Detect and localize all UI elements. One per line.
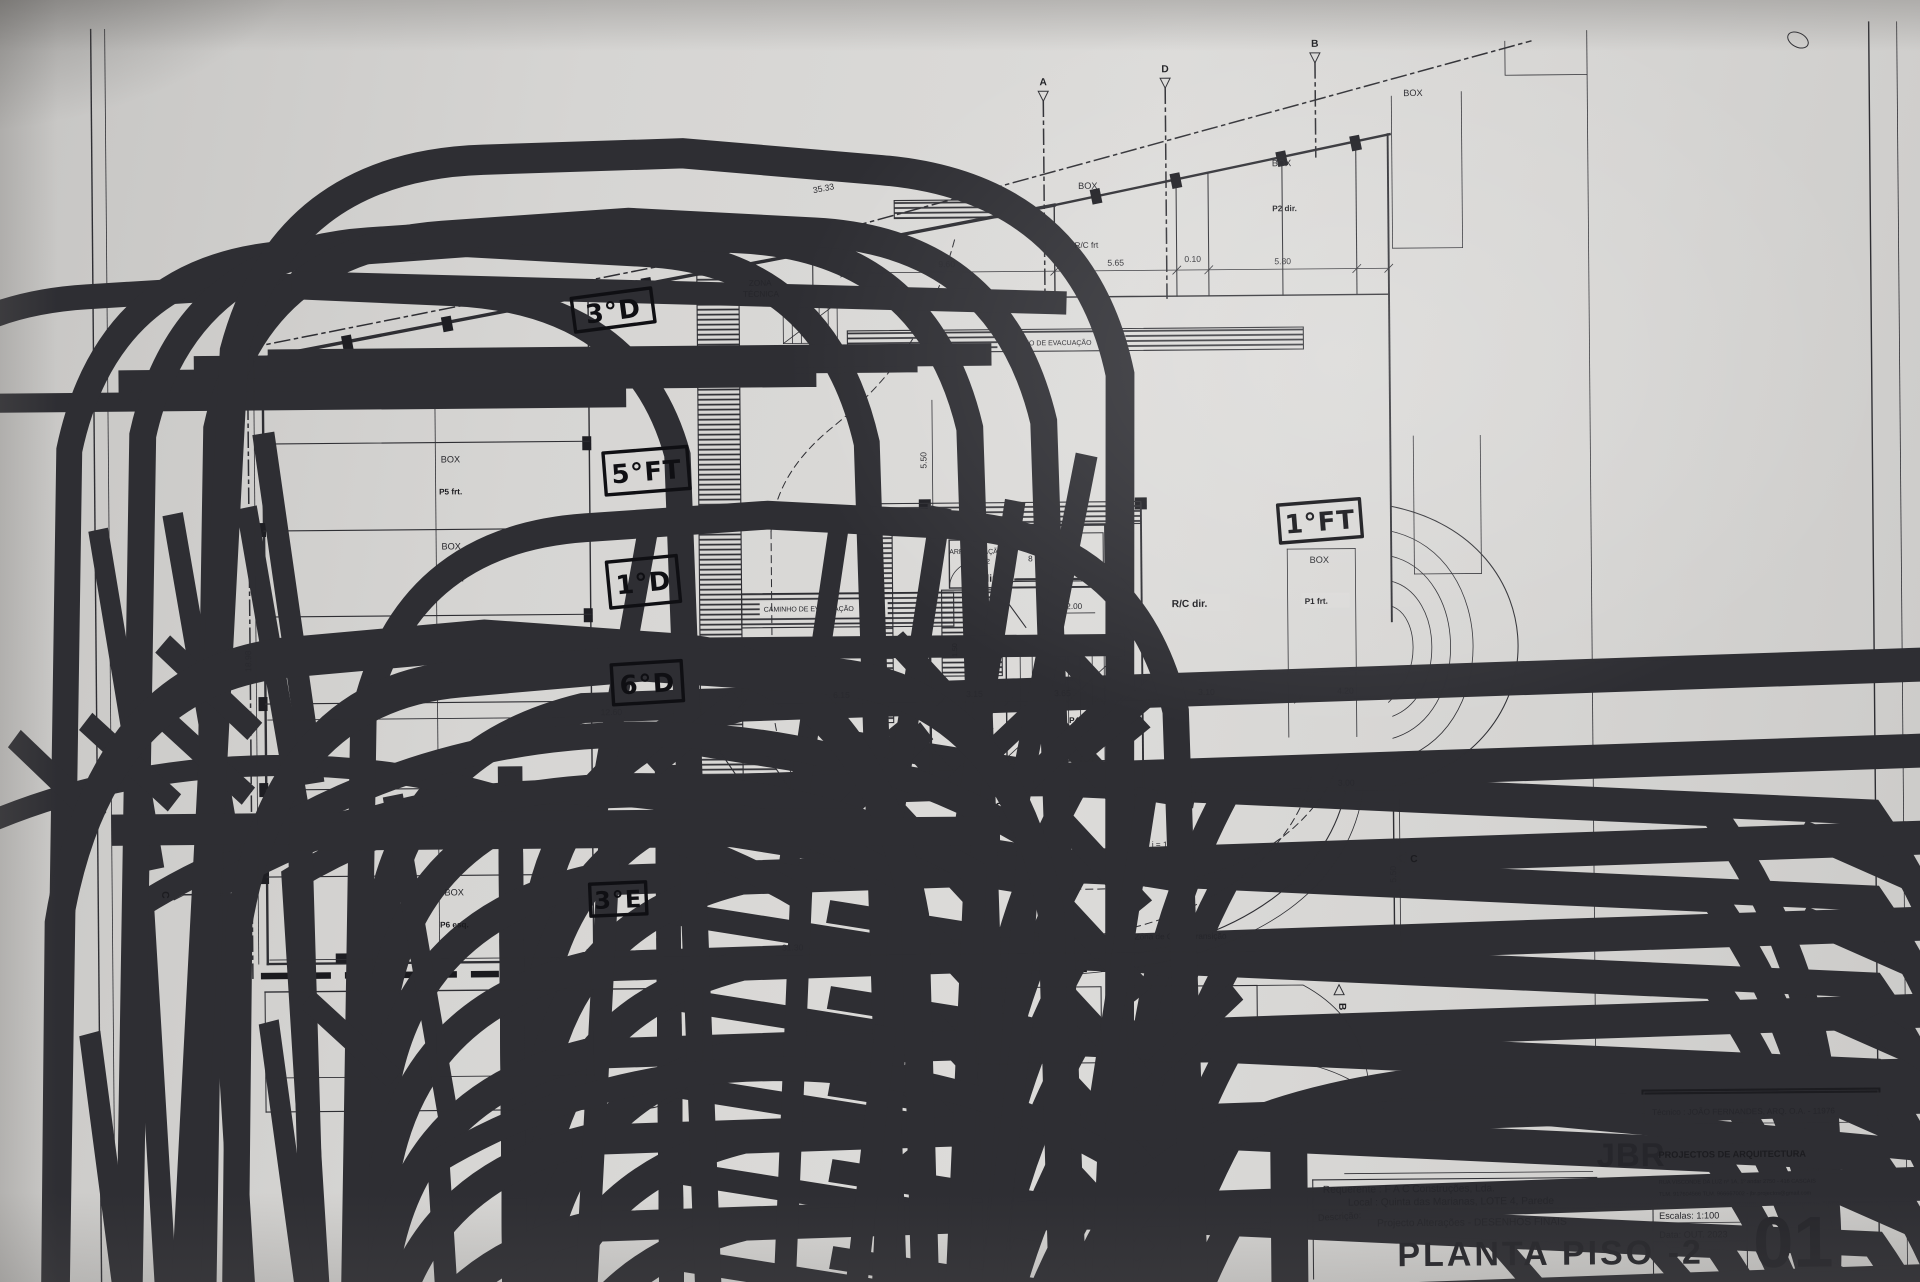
dim: 3.00 bbox=[1338, 778, 1355, 788]
dim: 3.65 bbox=[1054, 688, 1071, 698]
dim: 18.98 bbox=[243, 650, 253, 672]
dim: 6.15 bbox=[833, 690, 850, 700]
dim: 5.65 bbox=[1107, 258, 1124, 268]
photographed-drawing: BOX P3 dir. BOX P5 frt. BOX P1 dir. BOX … bbox=[0, 0, 1920, 1282]
stall-box-label: BOX bbox=[444, 887, 463, 897]
floor-plan: BOX P3 dir. BOX P5 frt. BOX P1 dir. BOX … bbox=[0, 0, 1920, 1282]
box-label: BOX bbox=[1272, 158, 1291, 168]
sheet-title: PLANTA PISO -2 bbox=[1397, 1234, 1704, 1275]
svg-text:5°FT: 5°FT bbox=[610, 455, 683, 490]
requerente-line: Requerente : F A C Construções, Lda. bbox=[1323, 1183, 1495, 1196]
dim: 4.20 bbox=[1337, 686, 1354, 696]
box-label: BOX bbox=[1310, 555, 1329, 565]
section-marker-b: B bbox=[1336, 1003, 1347, 1010]
stall-box-label: BOX bbox=[441, 454, 460, 464]
section-marker-c: C bbox=[159, 891, 170, 899]
svg-text:6°D: 6°D bbox=[619, 668, 676, 701]
unit-label-rc-frt: R/C frt bbox=[1075, 241, 1099, 250]
stall-id-label: P5 frt. bbox=[439, 487, 462, 496]
stall-p1-frt: P1 frt. bbox=[1305, 597, 1328, 606]
firm-logo: JBR bbox=[1596, 1136, 1665, 1174]
tecnico-line: Técnico : JOÃO FERNANDES, ARQ. O.A. - 11… bbox=[1652, 1105, 1835, 1117]
dim: 1.50 bbox=[952, 643, 959, 657]
svg-text:1°D: 1°D bbox=[615, 566, 673, 601]
box-label: BOX bbox=[1078, 181, 1097, 191]
stall-box-label: BOX bbox=[441, 541, 460, 551]
dim: 12.60 bbox=[601, 707, 623, 717]
dim: 5.80 bbox=[1274, 256, 1291, 266]
stall-id-label: P6 esq. bbox=[440, 920, 469, 929]
section-marker-c: C bbox=[1410, 854, 1418, 865]
handwritten-note-3e: 3°E bbox=[590, 882, 647, 916]
unit-label-rc-dir-car: R/C dir. bbox=[1172, 599, 1208, 610]
dim: 3.10 bbox=[1198, 687, 1215, 697]
local-line: Local : Quinta das Marianas, LOTE 4, Par… bbox=[1348, 1196, 1555, 1209]
data-line: Data: OUT. 2023 bbox=[1659, 1229, 1728, 1240]
section-marker-a: A bbox=[1039, 77, 1047, 88]
escalas-line: Escalas: 1:100 bbox=[1659, 1210, 1719, 1221]
descricao-line: Projecto Alterações - DESENHOS FINAIS bbox=[1377, 1217, 1567, 1230]
dim: 0.10 bbox=[1184, 254, 1201, 264]
dim: 5.50 bbox=[918, 452, 928, 469]
dim: 9.60 bbox=[938, 259, 955, 269]
dim: 31.30 bbox=[782, 942, 804, 952]
firm-subtitle: PROJECTOS DE ARQUITECTURA bbox=[1658, 1149, 1806, 1160]
sheet-number: 01 bbox=[1753, 1202, 1834, 1282]
dim: 35.33 bbox=[812, 181, 835, 195]
zona-tecnica-label: TÉCNICA bbox=[743, 289, 780, 299]
zona-tecnica-label: ZONA bbox=[749, 279, 772, 288]
stall-p2-dir: P2 dir. bbox=[1272, 204, 1297, 213]
handwritten-note-1ft: 1°FT bbox=[1278, 499, 1363, 543]
dim: 5.50 bbox=[1388, 866, 1398, 883]
svg-text:3°E: 3°E bbox=[594, 885, 643, 915]
section-marker-b: B bbox=[1311, 39, 1318, 50]
firm-address-1: RUA VISCONDE DA LUZ nº 1A, 1º andar 2750… bbox=[1659, 1178, 1816, 1186]
section-marker-d: D bbox=[1161, 64, 1168, 75]
paper-curl-mark bbox=[1785, 29, 1811, 52]
svg-text:1°FT: 1°FT bbox=[1284, 505, 1357, 540]
dim: 3.15 bbox=[966, 689, 983, 699]
box-label: BOX bbox=[1403, 88, 1422, 98]
